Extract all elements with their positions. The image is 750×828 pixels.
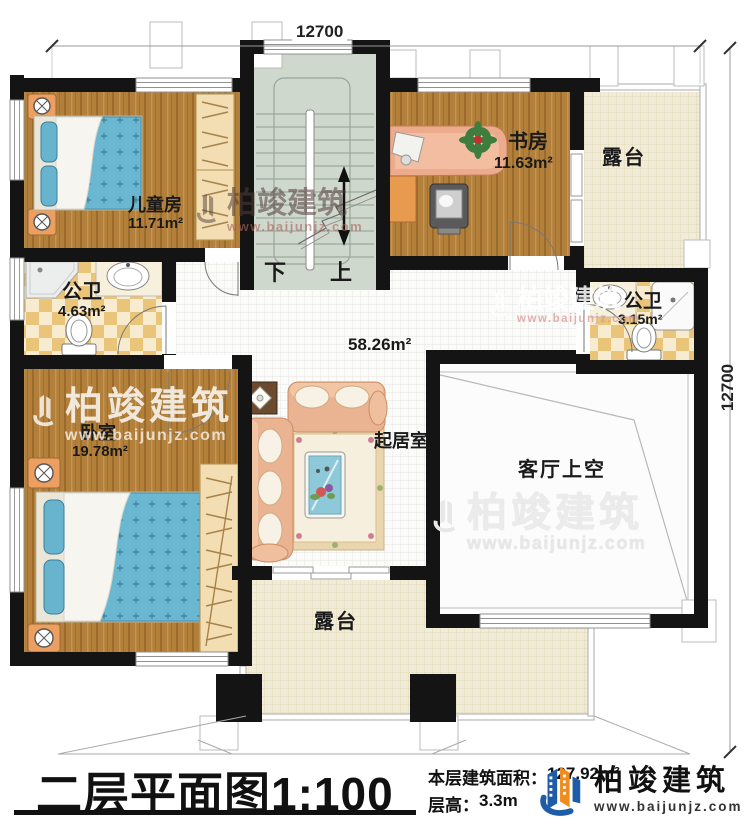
children-wardrobe	[196, 94, 234, 240]
children-room-label: 儿童房	[128, 196, 182, 214]
floor-height-row: 层高： 3.3m	[428, 791, 518, 816]
bath-right-area: 3.15m²	[618, 312, 662, 326]
floor-height-value: 3.3m	[479, 791, 518, 816]
floorplan-page: 12700 12700 儿童房 11.71m² 书房 11.63m² 露台 公卫…	[0, 0, 750, 828]
bedroom-bed	[36, 492, 216, 622]
study-area: 11.63m²	[494, 156, 553, 172]
sofa-set	[243, 382, 387, 562]
brand-logo-icon	[536, 760, 586, 821]
bath-right-label: 公卫	[624, 292, 662, 311]
children-room-area: 11.71m²	[128, 216, 183, 231]
bedroom-label: 卧室	[80, 424, 116, 442]
brand-url: www.baijunjz.com	[594, 800, 743, 814]
dimension-top: 12700	[292, 22, 347, 41]
stair-up-label: 上	[330, 262, 352, 284]
bedroom-area: 19.78m²	[72, 444, 128, 459]
floor-area-label: 本层建筑面积：	[428, 764, 547, 789]
terrace-top-label: 露台	[602, 148, 646, 168]
terrace-bottom-label: 露台	[314, 612, 358, 632]
floor-stairs	[254, 54, 376, 290]
children-bed	[34, 116, 142, 210]
stair-down-label: 下	[264, 262, 286, 284]
brand-logo: 柏竣建筑 www.baijunjz.com	[536, 760, 743, 821]
plan-canvas	[0, 0, 750, 760]
dimension-right: 12700	[718, 360, 737, 415]
bath-left-label: 公卫	[62, 282, 102, 302]
living-area: 58.26m²	[348, 336, 411, 353]
sofa-top	[288, 382, 387, 432]
void-label: 客厅上空	[518, 460, 606, 480]
pillar	[216, 674, 262, 722]
brand-name: 柏竣建筑	[594, 767, 743, 796]
bath-left-area: 4.63m²	[58, 304, 106, 319]
living-label: 起居室	[374, 432, 428, 450]
void-marking	[426, 363, 694, 614]
monitor	[430, 184, 468, 234]
bedroom-wardrobe	[200, 464, 238, 652]
floor-height-label: 层高：	[428, 791, 479, 816]
porch-lines	[58, 716, 690, 754]
coffee-table	[305, 452, 345, 518]
study-label: 书房	[508, 132, 548, 152]
pillar	[410, 674, 456, 722]
title-underline	[14, 810, 416, 815]
